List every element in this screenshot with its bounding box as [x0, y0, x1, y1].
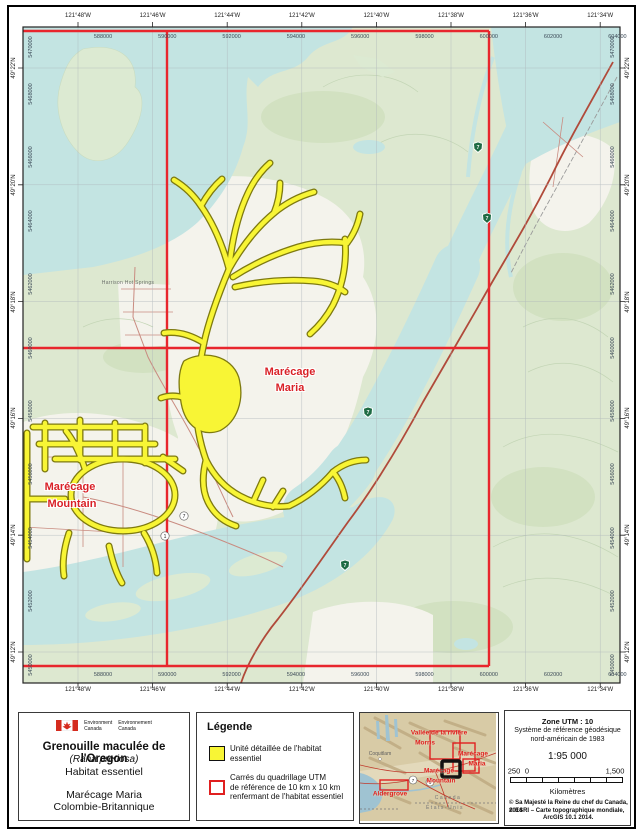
copyright-line3: ArcGIS 10.1 2014.	[543, 815, 593, 823]
scale-bar	[510, 777, 623, 783]
map-document-page: { "map": { "top_longitudes": ["121°48'W"…	[0, 0, 642, 832]
datum-text-line2: nord-américain de 1983	[505, 736, 630, 743]
scale-units: Kilomètres	[505, 787, 630, 796]
datum-text-line1: Système de référence géodésique	[505, 727, 630, 734]
legend-swatch-utm-square	[209, 780, 225, 795]
scale-ratio: 1:95 000	[505, 751, 630, 762]
scalebar-label-1500: 1,500	[606, 767, 625, 776]
scalebar-label-250: 250	[508, 767, 521, 776]
page-border	[7, 5, 636, 829]
site-name: Marécage Maria	[19, 789, 189, 801]
legend-item-habitat: Unité détaillée de l'habitatessentiel	[230, 744, 321, 763]
fip-header: EnvironmentCanada EnvironnementCanada	[19, 720, 189, 732]
canada-flag-icon	[56, 720, 78, 731]
inset-city-dot	[379, 758, 382, 761]
info-panel: Zone UTM : 10 Système de référence géodé…	[504, 710, 631, 826]
province-name: Colombie-Britannique	[19, 801, 189, 813]
legend-heading: Légende	[207, 721, 252, 733]
legend-panel: Légende Unité détaillée de l'habitatesse…	[196, 712, 354, 821]
subtitle-habitat: Habitat essentiel	[19, 766, 189, 778]
inset-map-panel: 7 1 Vallée de la rivière Morris Marécage…	[359, 712, 499, 824]
dept-name-fr: EnvironnementCanada	[118, 720, 152, 732]
dept-name-en: EnvironmentCanada	[84, 720, 112, 732]
utm-zone-text: Zone UTM : 10	[505, 717, 630, 726]
title-block: EnvironmentCanada EnvironnementCanada Gr…	[18, 712, 190, 821]
legend-item-utm-squares: Carrés du quadrillage UTMde référence de…	[230, 773, 343, 802]
species-name: (Rana pretiosa)	[19, 754, 189, 765]
scalebar-label-0: 0	[525, 767, 529, 776]
inset-overview-map: 7 1	[360, 713, 496, 821]
legend-swatch-habitat	[209, 746, 225, 761]
